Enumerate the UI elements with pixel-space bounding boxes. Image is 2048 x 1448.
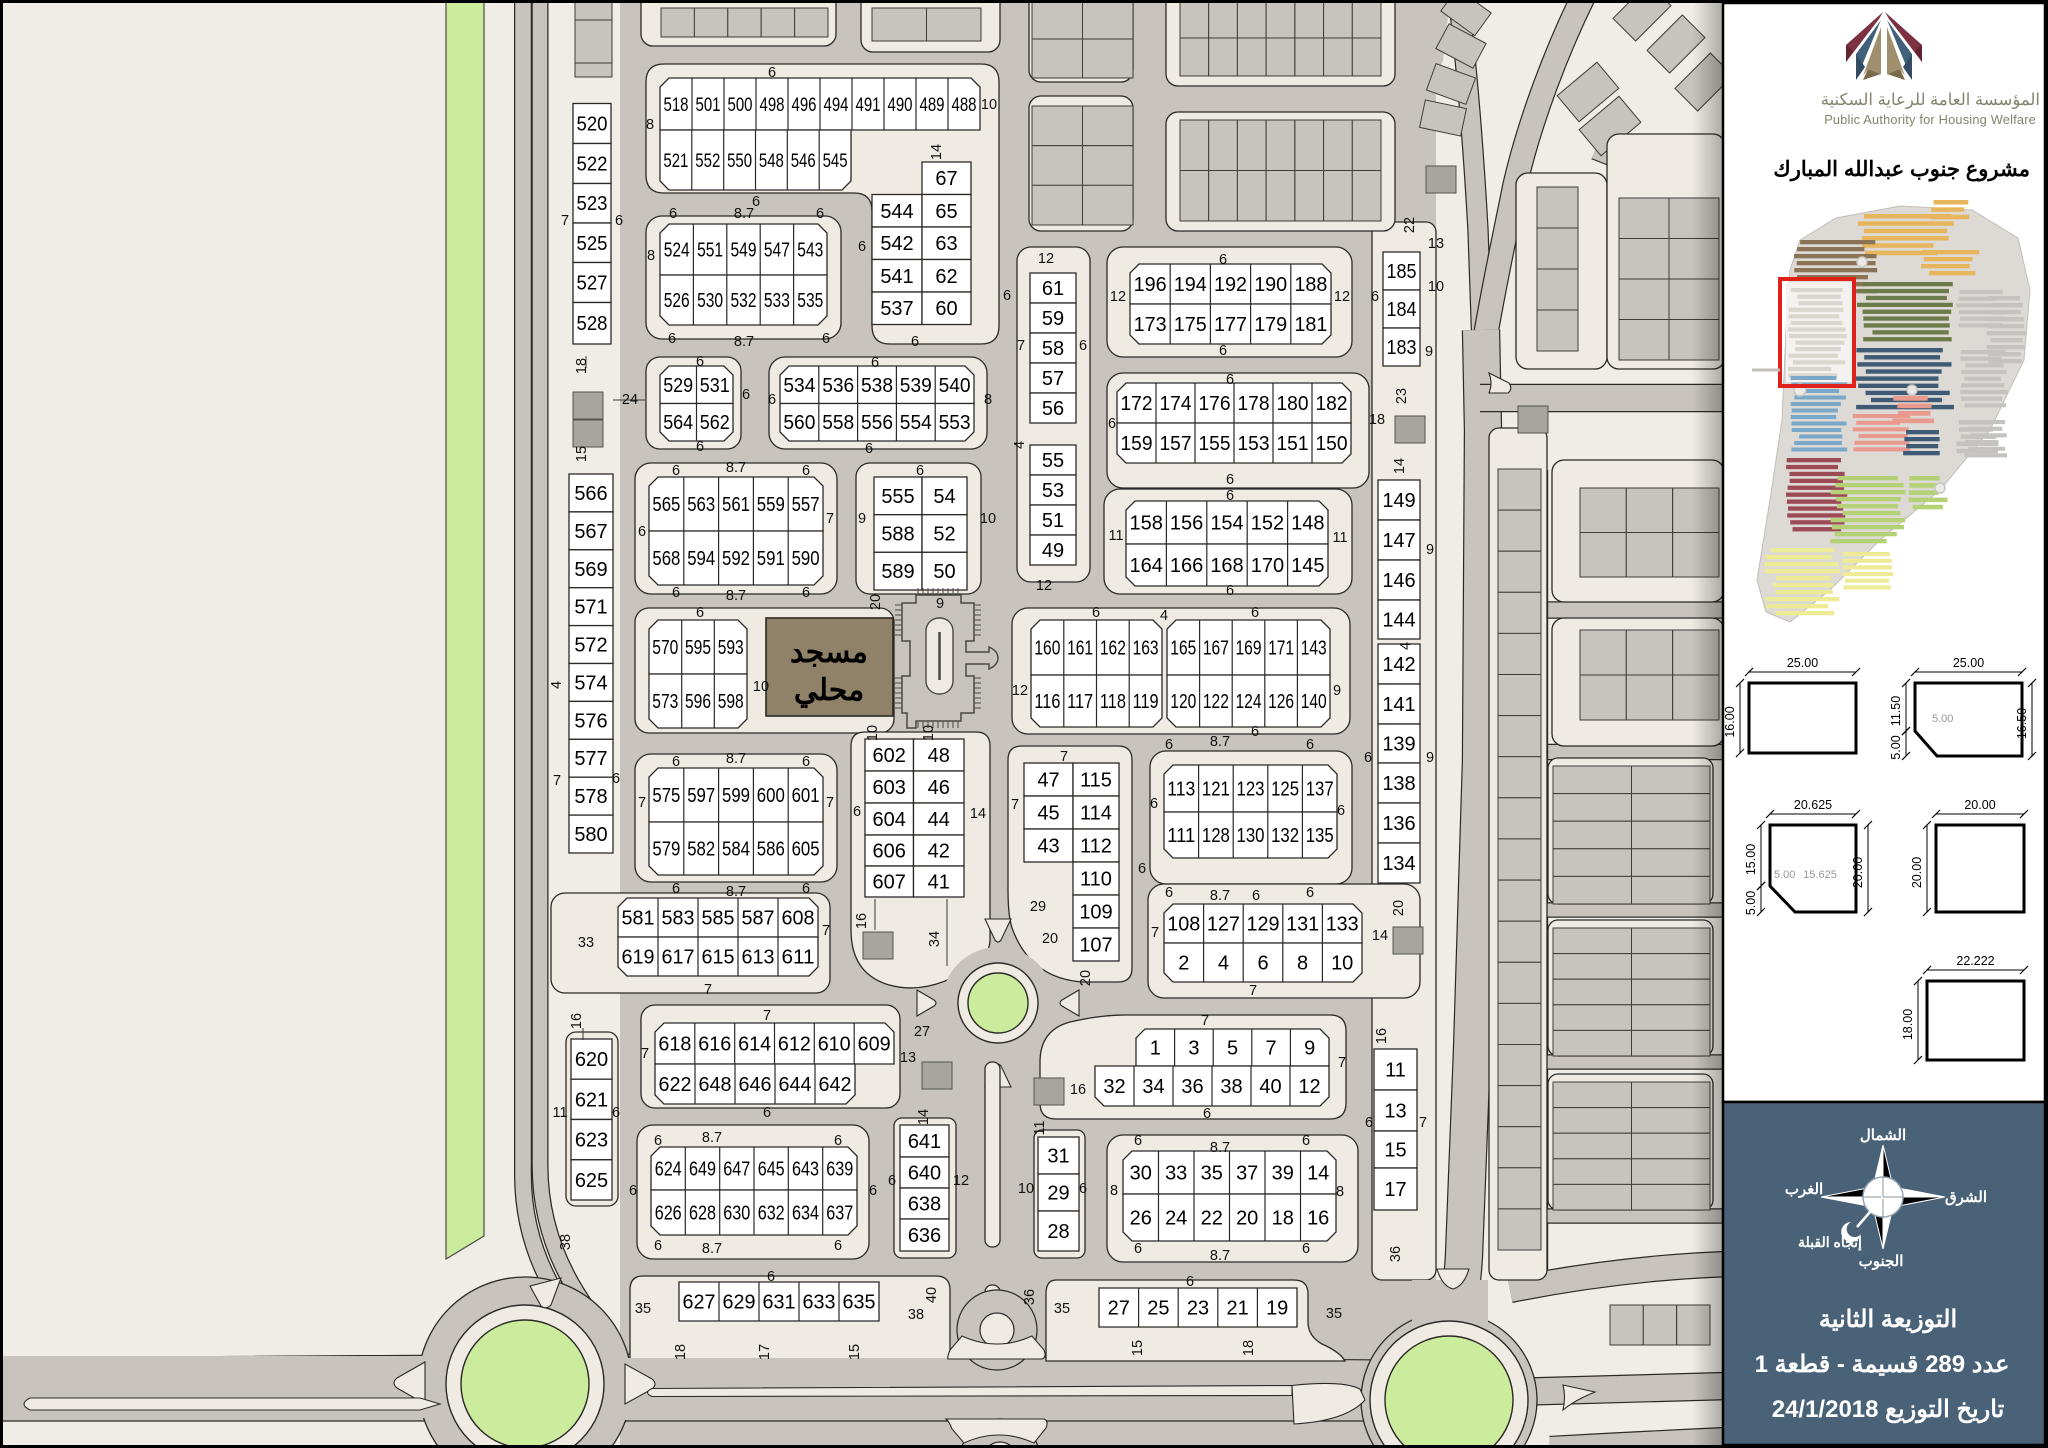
- svg-text:24: 24: [1165, 1208, 1187, 1230]
- svg-text:571: 571: [574, 597, 607, 619]
- svg-text:10: 10: [1331, 953, 1353, 975]
- svg-text:177: 177: [1214, 314, 1247, 336]
- svg-text:6: 6: [1079, 1181, 1087, 1197]
- svg-text:15: 15: [574, 446, 590, 462]
- svg-text:6: 6: [865, 441, 873, 457]
- svg-text:149: 149: [1382, 490, 1415, 512]
- svg-text:6: 6: [802, 585, 810, 601]
- svg-text:488: 488: [952, 95, 977, 116]
- svg-text:613: 613: [742, 947, 775, 969]
- svg-text:594: 594: [687, 548, 715, 570]
- svg-text:626: 626: [655, 1203, 682, 1225]
- svg-text:174: 174: [1160, 393, 1192, 415]
- svg-text:6: 6: [763, 1105, 771, 1121]
- svg-text:630: 630: [723, 1203, 750, 1225]
- svg-text:156: 156: [1170, 513, 1203, 535]
- svg-text:6: 6: [612, 1105, 620, 1121]
- svg-text:8: 8: [984, 392, 992, 408]
- svg-text:39: 39: [1272, 1163, 1294, 1185]
- svg-text:8.7: 8.7: [702, 1241, 722, 1257]
- svg-text:12: 12: [1298, 1076, 1320, 1098]
- svg-text:545: 545: [823, 151, 848, 172]
- svg-text:6: 6: [1219, 252, 1227, 268]
- svg-text:614: 614: [738, 1034, 771, 1056]
- svg-text:6: 6: [871, 355, 879, 371]
- svg-text:632: 632: [758, 1203, 785, 1225]
- svg-text:62: 62: [935, 266, 957, 288]
- svg-text:6: 6: [1203, 1106, 1211, 1122]
- svg-text:8.7: 8.7: [734, 206, 754, 222]
- svg-text:7: 7: [553, 773, 561, 789]
- svg-text:576: 576: [574, 710, 607, 732]
- svg-text:159: 159: [1121, 433, 1153, 455]
- svg-text:38: 38: [558, 1234, 574, 1250]
- svg-text:8.7: 8.7: [726, 588, 746, 604]
- svg-text:15: 15: [847, 1344, 863, 1360]
- svg-text:137: 137: [1306, 779, 1334, 801]
- svg-text:585: 585: [702, 908, 735, 930]
- svg-text:6: 6: [615, 213, 623, 229]
- svg-text:535: 535: [797, 290, 823, 312]
- svg-text:625: 625: [575, 1170, 608, 1192]
- svg-text:617: 617: [662, 947, 695, 969]
- svg-text:577: 577: [574, 748, 607, 770]
- svg-text:12: 12: [1334, 289, 1350, 305]
- svg-text:575: 575: [652, 785, 680, 807]
- svg-text:6: 6: [768, 392, 776, 408]
- svg-text:9: 9: [1426, 750, 1434, 766]
- svg-text:559: 559: [757, 494, 785, 516]
- svg-text:6: 6: [672, 881, 680, 897]
- svg-text:20: 20: [1236, 1208, 1258, 1230]
- svg-text:37: 37: [1236, 1163, 1258, 1185]
- svg-text:4: 4: [1398, 642, 1414, 650]
- svg-text:620: 620: [575, 1049, 608, 1071]
- svg-text:605: 605: [792, 839, 820, 861]
- svg-text:33: 33: [1165, 1163, 1187, 1185]
- svg-text:631: 631: [763, 1292, 796, 1314]
- svg-text:107: 107: [1079, 935, 1112, 957]
- svg-text:14: 14: [1372, 928, 1388, 944]
- svg-text:589: 589: [881, 561, 914, 583]
- svg-text:644: 644: [779, 1074, 812, 1096]
- svg-text:582: 582: [687, 839, 715, 861]
- svg-text:5.00: 5.00: [1774, 869, 1795, 881]
- svg-text:182: 182: [1316, 393, 1348, 415]
- svg-text:10: 10: [1018, 1181, 1034, 1197]
- svg-text:536: 536: [822, 375, 854, 397]
- svg-text:5.00: 5.00: [1889, 735, 1903, 759]
- svg-text:8: 8: [647, 248, 655, 264]
- svg-text:548: 548: [759, 151, 784, 172]
- svg-text:634: 634: [792, 1203, 819, 1225]
- svg-text:6: 6: [1364, 750, 1372, 766]
- svg-text:35: 35: [1201, 1163, 1223, 1185]
- svg-text:8.7: 8.7: [726, 460, 746, 476]
- svg-text:11: 11: [1108, 528, 1123, 544]
- svg-text:123: 123: [1237, 779, 1265, 801]
- svg-text:21: 21: [1226, 1298, 1248, 1320]
- svg-text:6: 6: [1251, 605, 1259, 621]
- svg-text:116: 116: [1034, 691, 1060, 713]
- svg-text:8.7: 8.7: [734, 334, 754, 350]
- svg-text:162: 162: [1100, 638, 1126, 660]
- svg-text:7: 7: [826, 511, 834, 527]
- svg-text:183: 183: [1387, 337, 1417, 359]
- svg-text:19: 19: [1266, 1298, 1288, 1320]
- svg-text:38: 38: [908, 1307, 924, 1323]
- svg-text:115: 115: [1080, 770, 1112, 792]
- svg-text:6: 6: [1252, 888, 1260, 904]
- svg-text:190: 190: [1254, 274, 1287, 296]
- svg-text:6: 6: [816, 206, 824, 222]
- svg-text:151: 151: [1277, 433, 1309, 455]
- svg-text:648: 648: [699, 1074, 732, 1096]
- svg-text:574: 574: [574, 673, 607, 695]
- svg-text:181: 181: [1294, 314, 1327, 336]
- svg-text:144: 144: [1382, 610, 1415, 632]
- svg-text:36: 36: [1022, 1289, 1038, 1305]
- svg-text:171: 171: [1268, 638, 1294, 660]
- svg-text:8.7: 8.7: [1210, 888, 1230, 904]
- svg-text:7: 7: [1011, 797, 1019, 813]
- svg-text:7: 7: [1151, 925, 1159, 941]
- svg-text:20.00: 20.00: [1964, 798, 1995, 812]
- svg-text:9: 9: [1333, 683, 1341, 699]
- svg-text:147: 147: [1382, 530, 1415, 552]
- svg-text:54: 54: [933, 486, 955, 508]
- svg-text:596: 596: [685, 691, 711, 713]
- svg-text:155: 155: [1199, 433, 1231, 455]
- svg-text:581: 581: [622, 908, 655, 930]
- svg-text:121: 121: [1202, 779, 1230, 801]
- svg-text:568: 568: [652, 548, 680, 570]
- svg-text:546: 546: [791, 151, 816, 172]
- svg-text:11.50: 11.50: [1889, 696, 1903, 726]
- svg-text:6: 6: [1302, 1133, 1310, 1149]
- svg-text:173: 173: [1134, 314, 1167, 336]
- svg-text:166: 166: [1170, 555, 1203, 577]
- svg-text:10: 10: [981, 97, 997, 113]
- svg-text:6: 6: [1337, 803, 1345, 819]
- svg-text:17: 17: [1384, 1179, 1406, 1201]
- svg-text:6: 6: [1186, 1274, 1194, 1290]
- svg-text:588: 588: [881, 524, 914, 546]
- svg-text:59: 59: [1042, 308, 1064, 330]
- svg-text:139: 139: [1382, 734, 1415, 756]
- svg-text:8: 8: [1297, 953, 1308, 975]
- svg-text:122: 122: [1203, 691, 1229, 713]
- svg-text:7: 7: [1419, 1115, 1427, 1131]
- svg-text:6: 6: [612, 771, 620, 787]
- svg-text:527: 527: [577, 273, 608, 295]
- svg-text:6: 6: [802, 754, 810, 770]
- svg-text:7: 7: [763, 1008, 771, 1024]
- svg-text:2: 2: [1178, 953, 1189, 975]
- svg-text:16.50: 16.50: [2015, 708, 2029, 739]
- svg-text:6: 6: [1219, 343, 1227, 359]
- svg-text:600: 600: [757, 785, 785, 807]
- svg-text:6: 6: [767, 1269, 775, 1285]
- svg-text:8.7: 8.7: [702, 1130, 722, 1146]
- svg-text:641: 641: [908, 1131, 941, 1153]
- svg-text:560: 560: [783, 412, 815, 434]
- svg-text:35: 35: [635, 1301, 651, 1317]
- svg-text:608: 608: [782, 908, 815, 930]
- svg-text:569: 569: [574, 559, 607, 581]
- svg-text:6: 6: [696, 605, 704, 621]
- svg-text:24: 24: [622, 392, 638, 408]
- svg-text:584: 584: [722, 839, 750, 861]
- svg-text:11: 11: [1332, 530, 1347, 546]
- svg-text:643: 643: [792, 1159, 819, 1181]
- svg-text:20.00: 20.00: [1851, 857, 1865, 888]
- svg-text:646: 646: [739, 1074, 772, 1096]
- svg-text:48: 48: [928, 745, 950, 767]
- svg-text:17: 17: [757, 1344, 773, 1360]
- svg-text:638: 638: [908, 1194, 941, 1216]
- svg-text:610: 610: [818, 1034, 851, 1056]
- svg-text:23: 23: [1394, 388, 1410, 404]
- svg-text:6: 6: [696, 354, 704, 370]
- svg-text:9: 9: [1426, 542, 1434, 558]
- svg-text:549: 549: [731, 240, 757, 262]
- svg-text:7: 7: [1060, 749, 1068, 765]
- svg-text:489: 489: [920, 95, 945, 116]
- svg-text:583: 583: [662, 908, 695, 930]
- svg-text:496: 496: [792, 95, 817, 116]
- svg-text:6: 6: [853, 804, 861, 820]
- svg-text:7: 7: [561, 213, 569, 229]
- svg-text:129: 129: [1247, 914, 1280, 936]
- svg-text:125: 125: [1271, 779, 1299, 801]
- svg-text:7: 7: [1249, 983, 1257, 999]
- svg-text:142: 142: [1382, 654, 1415, 676]
- svg-text:179: 179: [1254, 314, 1287, 336]
- svg-text:537: 537: [880, 298, 913, 320]
- svg-text:518: 518: [664, 95, 689, 116]
- svg-text:124: 124: [1236, 691, 1262, 713]
- svg-text:22: 22: [1201, 1208, 1223, 1230]
- svg-text:604: 604: [873, 809, 906, 831]
- svg-text:547: 547: [764, 240, 790, 262]
- svg-text:15.625: 15.625: [1803, 869, 1837, 881]
- svg-text:624: 624: [655, 1159, 682, 1181]
- svg-text:540: 540: [939, 375, 971, 397]
- svg-text:6: 6: [1251, 724, 1259, 740]
- svg-text:41: 41: [928, 872, 950, 894]
- svg-text:628: 628: [689, 1203, 716, 1225]
- svg-text:138: 138: [1382, 773, 1415, 795]
- svg-text:551: 551: [697, 240, 723, 262]
- svg-text:11: 11: [1032, 1120, 1048, 1135]
- svg-text:6: 6: [1226, 488, 1234, 504]
- svg-text:6: 6: [802, 463, 810, 479]
- svg-text:18: 18: [574, 358, 590, 374]
- svg-text:6: 6: [668, 331, 676, 347]
- svg-text:135: 135: [1306, 825, 1334, 847]
- svg-text:593: 593: [718, 637, 744, 659]
- svg-text:158: 158: [1130, 513, 1163, 535]
- svg-text:498: 498: [760, 95, 785, 116]
- svg-text:6: 6: [1079, 338, 1087, 354]
- svg-text:30: 30: [1130, 1163, 1152, 1185]
- svg-text:167: 167: [1203, 638, 1229, 660]
- svg-text:553: 553: [939, 412, 971, 434]
- svg-text:110: 110: [1080, 869, 1112, 891]
- svg-text:6: 6: [672, 463, 680, 479]
- svg-text:145: 145: [1291, 555, 1324, 577]
- svg-text:6: 6: [768, 65, 776, 81]
- svg-text:33: 33: [578, 935, 594, 951]
- svg-text:590: 590: [792, 548, 820, 570]
- svg-text:6: 6: [654, 1238, 662, 1254]
- svg-text:6: 6: [869, 1183, 877, 1199]
- svg-text:136: 136: [1382, 813, 1415, 835]
- svg-text:6: 6: [888, 1173, 896, 1189]
- svg-text:532: 532: [731, 290, 757, 312]
- svg-text:533: 533: [764, 290, 790, 312]
- svg-text:598: 598: [718, 691, 744, 713]
- svg-text:563: 563: [687, 494, 715, 516]
- svg-text:113: 113: [1167, 779, 1195, 801]
- svg-text:526: 526: [664, 290, 690, 312]
- svg-text:57: 57: [1042, 368, 1064, 390]
- svg-text:63: 63: [935, 233, 957, 255]
- svg-text:530: 530: [697, 290, 723, 312]
- svg-text:520: 520: [577, 114, 608, 136]
- svg-text:558: 558: [822, 412, 854, 434]
- svg-text:109: 109: [1079, 902, 1112, 924]
- svg-text:55: 55: [1042, 450, 1064, 472]
- svg-text:7: 7: [704, 982, 712, 998]
- svg-text:128: 128: [1202, 825, 1230, 847]
- svg-text:521: 521: [663, 151, 688, 172]
- svg-text:14: 14: [970, 806, 986, 822]
- svg-text:15.00: 15.00: [1744, 844, 1758, 875]
- svg-text:مشروع جنوب عبدالله المبارك: مشروع جنوب عبدالله المبارك: [1773, 158, 2030, 182]
- svg-text:615: 615: [702, 947, 735, 969]
- svg-text:9: 9: [858, 511, 866, 527]
- svg-text:25.00: 25.00: [1787, 656, 1818, 670]
- svg-text:الجنوب: الجنوب: [1859, 1253, 1904, 1270]
- svg-text:557: 557: [792, 494, 820, 516]
- svg-text:554: 554: [900, 412, 932, 434]
- svg-text:157: 157: [1160, 433, 1192, 455]
- svg-text:6: 6: [638, 524, 646, 540]
- svg-text:524: 524: [664, 240, 690, 262]
- svg-text:595: 595: [685, 637, 711, 659]
- svg-text:649: 649: [689, 1159, 716, 1181]
- svg-text:132: 132: [1271, 825, 1299, 847]
- svg-text:597: 597: [687, 785, 715, 807]
- svg-text:6: 6: [1108, 416, 1116, 432]
- svg-text:7: 7: [1201, 1013, 1209, 1029]
- svg-text:635: 635: [843, 1292, 876, 1314]
- svg-text:161: 161: [1067, 638, 1093, 660]
- svg-text:31: 31: [1047, 1146, 1069, 1168]
- svg-text:164: 164: [1130, 555, 1163, 577]
- svg-text:573: 573: [652, 691, 678, 713]
- svg-text:6: 6: [1306, 737, 1314, 753]
- svg-text:18.00: 18.00: [1901, 1009, 1915, 1040]
- svg-text:11: 11: [1385, 1060, 1406, 1082]
- svg-text:4: 4: [549, 681, 565, 689]
- svg-text:12: 12: [1036, 578, 1052, 594]
- svg-text:567: 567: [574, 521, 607, 543]
- svg-text:16: 16: [1307, 1208, 1329, 1230]
- svg-text:133: 133: [1326, 914, 1359, 936]
- svg-text:603: 603: [873, 777, 906, 799]
- svg-text:544: 544: [880, 201, 913, 223]
- svg-text:الشمال: الشمال: [1860, 1127, 1906, 1144]
- svg-text:176: 176: [1199, 393, 1231, 415]
- svg-text:6: 6: [1003, 288, 1011, 304]
- svg-text:13: 13: [1428, 236, 1444, 252]
- svg-text:539: 539: [900, 375, 932, 397]
- svg-text:6: 6: [834, 1133, 842, 1149]
- svg-text:4: 4: [1218, 953, 1229, 975]
- svg-text:12: 12: [1012, 683, 1028, 699]
- svg-text:494: 494: [824, 95, 849, 116]
- svg-text:622: 622: [659, 1074, 692, 1096]
- svg-text:612: 612: [778, 1034, 811, 1056]
- svg-text:5.00: 5.00: [1744, 891, 1758, 915]
- svg-text:6: 6: [822, 331, 830, 347]
- svg-text:52: 52: [933, 524, 955, 546]
- svg-text:146: 146: [1382, 570, 1415, 592]
- svg-text:12: 12: [1110, 289, 1126, 305]
- svg-text:45: 45: [1037, 803, 1059, 825]
- svg-text:7: 7: [1266, 1038, 1277, 1060]
- svg-text:14: 14: [916, 1109, 932, 1125]
- svg-text:592: 592: [722, 548, 750, 570]
- svg-text:7: 7: [1338, 1055, 1346, 1071]
- svg-text:543: 543: [797, 240, 823, 262]
- svg-text:6: 6: [696, 439, 704, 455]
- svg-text:6: 6: [742, 387, 750, 403]
- svg-text:172: 172: [1121, 393, 1153, 415]
- svg-text:140: 140: [1301, 691, 1327, 713]
- svg-text:35: 35: [1326, 1306, 1342, 1322]
- svg-text:602: 602: [873, 745, 906, 767]
- svg-text:34: 34: [1142, 1076, 1164, 1098]
- svg-text:14: 14: [1307, 1163, 1329, 1185]
- svg-text:10: 10: [921, 725, 937, 741]
- svg-text:26: 26: [1130, 1208, 1152, 1230]
- svg-text:25.00: 25.00: [1953, 656, 1984, 670]
- svg-text:642: 642: [819, 1074, 852, 1096]
- svg-text:168: 168: [1210, 555, 1243, 577]
- svg-text:50: 50: [933, 561, 955, 583]
- svg-text:490: 490: [888, 95, 913, 116]
- svg-text:محلي: محلي: [794, 674, 864, 708]
- svg-text:566: 566: [574, 483, 607, 505]
- svg-text:185: 185: [1387, 261, 1417, 283]
- svg-text:623: 623: [575, 1130, 608, 1152]
- svg-text:184: 184: [1387, 299, 1417, 321]
- svg-text:14: 14: [1392, 458, 1408, 474]
- svg-text:الغرب: الغرب: [1785, 1181, 1823, 1198]
- svg-text:عدد 289 قسيمة - قطعة 1: عدد 289 قسيمة - قطعة 1: [1755, 1351, 2010, 1378]
- svg-text:8.7: 8.7: [1210, 1248, 1230, 1264]
- svg-text:619: 619: [622, 947, 655, 969]
- svg-text:9: 9: [1425, 344, 1433, 360]
- svg-text:9: 9: [1304, 1038, 1315, 1060]
- svg-text:9: 9: [936, 596, 944, 612]
- svg-text:637: 637: [826, 1203, 853, 1225]
- svg-text:16.00: 16.00: [1723, 706, 1737, 737]
